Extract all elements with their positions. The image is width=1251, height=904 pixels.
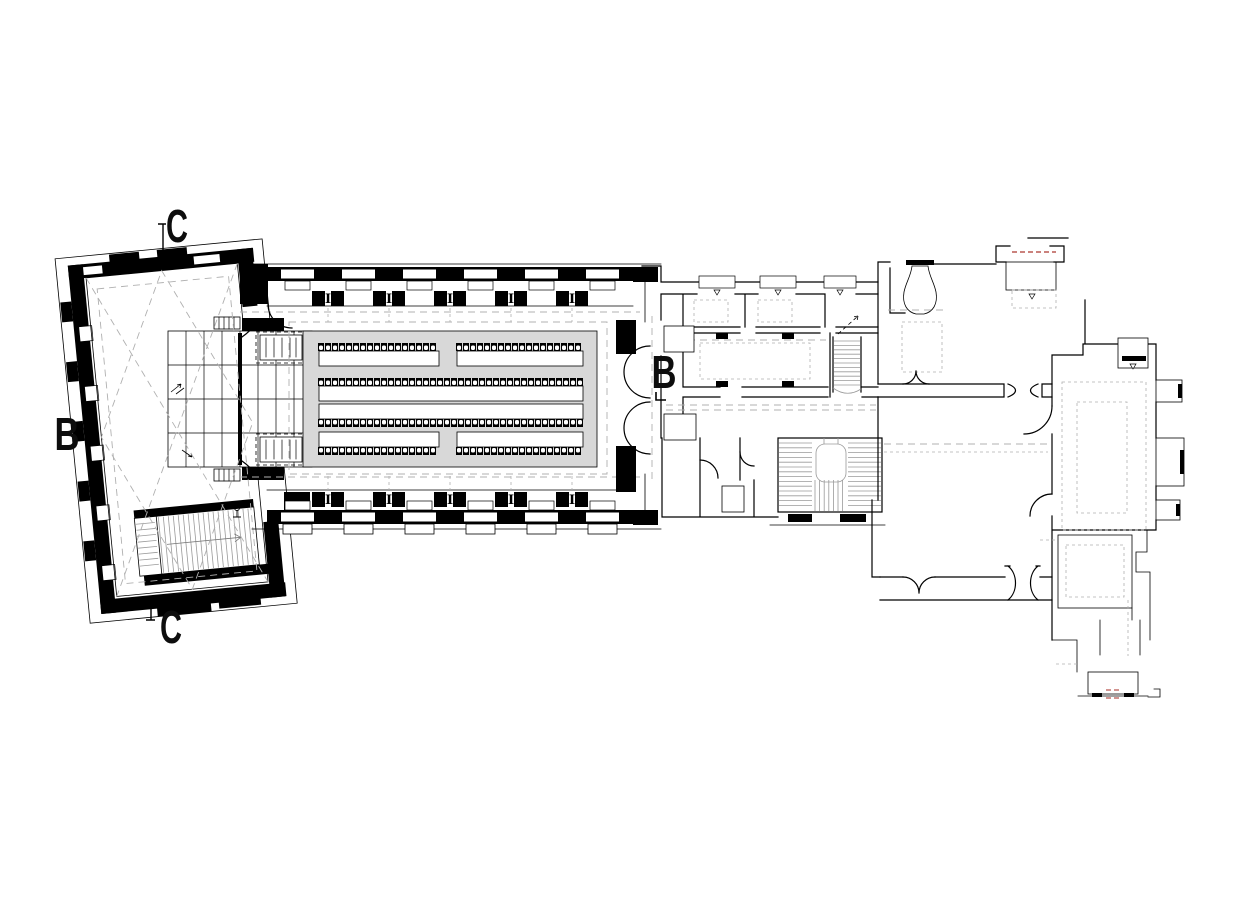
seat-pad <box>555 448 559 453</box>
north-window-bays <box>699 276 856 295</box>
seat-pad <box>478 346 482 351</box>
chapel-niche-inner <box>407 501 432 510</box>
northeast-portal <box>996 238 1068 308</box>
seat-pad <box>375 346 379 351</box>
bench <box>457 432 583 447</box>
chapel-niche <box>342 513 375 522</box>
seat-pad <box>403 420 407 425</box>
seat-pad <box>396 420 400 425</box>
seat-pad <box>550 381 554 386</box>
column-symbol: I <box>508 292 514 307</box>
chapel-niche <box>342 270 375 279</box>
pilaster-tab <box>434 492 447 507</box>
east-chapel-wing <box>1024 300 1184 698</box>
seat-pad <box>410 448 414 453</box>
bench <box>319 404 583 419</box>
seat-pad <box>522 381 526 386</box>
bench <box>319 386 583 401</box>
seat-pad <box>389 420 393 425</box>
double-door-swing <box>903 371 929 384</box>
u-stair-treads <box>779 443 881 511</box>
double-door-swing <box>903 577 935 593</box>
u-stair <box>778 438 882 512</box>
chapel-niche-inner <box>346 501 371 510</box>
south-window-sill <box>840 514 866 522</box>
seat-pad <box>326 381 330 386</box>
seat-pad <box>354 346 358 351</box>
east-entrance-door-swings <box>624 346 650 454</box>
seat-pad <box>431 381 435 386</box>
seat-pad <box>424 420 428 425</box>
seat-pad <box>333 381 337 386</box>
column-symbol: I <box>508 493 514 508</box>
seat-pad <box>382 420 386 425</box>
seat-pad <box>459 381 463 386</box>
east-door-pier-bottom <box>616 446 636 492</box>
south-window-sill <box>788 514 812 522</box>
pilaster-tab <box>331 291 344 306</box>
seat-pad <box>347 381 351 386</box>
seat-pad <box>473 420 477 425</box>
seat-pad <box>487 420 491 425</box>
seat-pad <box>375 448 379 453</box>
column-symbol: I <box>325 493 331 508</box>
seat-pad <box>555 346 559 351</box>
column-symbol: I <box>386 292 392 307</box>
seat-pad <box>473 381 477 386</box>
seat-pad <box>340 346 344 351</box>
seat-pad <box>480 381 484 386</box>
seat-pad <box>513 346 517 351</box>
seat-pad <box>333 346 337 351</box>
seat-pad <box>410 420 414 425</box>
seat-pad <box>403 346 407 351</box>
chapel-niche-inner <box>590 281 615 290</box>
chapel-niche-inner <box>529 281 554 290</box>
column-symbol: I <box>447 493 453 508</box>
seat-pad <box>492 346 496 351</box>
seat-pad <box>438 420 442 425</box>
seat-pad <box>557 420 561 425</box>
west-stair <box>134 498 271 586</box>
seat-pad <box>319 420 323 425</box>
chapel-niche-inner <box>407 281 432 290</box>
south-room <box>1040 535 1132 608</box>
ceiling-guide-inner <box>1077 402 1127 513</box>
seat-pad <box>340 448 344 453</box>
seat-pad <box>548 346 552 351</box>
seat-pad <box>571 381 575 386</box>
seat-pad <box>403 381 407 386</box>
pilaster-tab <box>514 492 527 507</box>
seat-pad <box>562 448 566 453</box>
seat-pad <box>459 420 463 425</box>
chapel-niche <box>281 270 314 279</box>
seat-pad <box>417 420 421 425</box>
pilaster-tab <box>373 291 386 306</box>
outer-chapel <box>344 524 373 534</box>
seat-pad <box>424 346 428 351</box>
buttress <box>83 540 96 561</box>
seat-pad <box>389 448 393 453</box>
seat-pad <box>424 448 428 453</box>
seat-pad <box>326 448 330 453</box>
seat-pad <box>485 448 489 453</box>
floor-plan-page: IIIIIIIIII <box>0 0 1251 904</box>
pilaster-tab <box>392 492 405 507</box>
seat-pad <box>499 448 503 453</box>
chapel-niche <box>525 513 558 522</box>
pilaster-tab <box>556 291 569 306</box>
buttress <box>60 301 73 322</box>
pilaster-tab <box>453 291 466 306</box>
pilaster-tab <box>373 492 386 507</box>
seat-pad <box>522 420 526 425</box>
seat-pad <box>548 448 552 453</box>
seat-pad <box>347 448 351 453</box>
outer-chapel <box>466 524 495 534</box>
seat-pad <box>506 346 510 351</box>
seat-pad <box>319 448 323 453</box>
section-marker-b-left: B <box>55 408 80 460</box>
column-symbol: I <box>569 493 575 508</box>
chapel-niche-inner <box>285 501 310 510</box>
seat-pad <box>471 448 475 453</box>
chapel-niche-inner <box>590 501 615 510</box>
seat-pad <box>478 448 482 453</box>
seat-pad <box>499 346 503 351</box>
chapel-niche <box>525 270 558 279</box>
seat-pad <box>354 420 358 425</box>
seat-pad <box>480 420 484 425</box>
seat-pad <box>485 346 489 351</box>
chapel-niche-inner <box>468 281 493 290</box>
seat-pad <box>536 381 540 386</box>
east-wing <box>642 238 1184 698</box>
seat-pad <box>382 346 386 351</box>
chapel-niche <box>403 270 436 279</box>
chapel-niche-inner <box>346 281 371 290</box>
seat-pad <box>492 448 496 453</box>
seat-pad <box>375 381 379 386</box>
buttress <box>66 361 79 382</box>
pilaster-tab <box>453 492 466 507</box>
seat-pad <box>347 346 351 351</box>
seat-pad <box>541 346 545 351</box>
seat-pad <box>333 420 337 425</box>
seat-pad <box>368 420 372 425</box>
chapel-niche <box>403 513 436 522</box>
pilaster-tab <box>331 492 344 507</box>
proscenium-wall-top <box>242 318 284 331</box>
seat-pad <box>564 381 568 386</box>
seat-pad <box>452 420 456 425</box>
seat-pad <box>354 381 358 386</box>
seat-pad <box>508 381 512 386</box>
section-marker-c-top: C <box>166 200 188 252</box>
seat-pad <box>368 448 372 453</box>
buttress <box>78 481 91 502</box>
seat-pad <box>354 448 358 453</box>
chapel-niche <box>464 513 497 522</box>
chapel-niche <box>464 270 497 279</box>
seat-pad <box>382 381 386 386</box>
seat-pad <box>431 420 435 425</box>
seat-pad <box>576 346 580 351</box>
seat-pad <box>529 381 533 386</box>
pilaster-tab <box>312 492 325 507</box>
seat-pad <box>494 420 498 425</box>
southeast-stepped-walls <box>1052 530 1150 672</box>
bell-pier <box>888 260 944 372</box>
pilaster-tab <box>575 291 588 306</box>
seat-pad <box>438 381 442 386</box>
south-porch <box>1078 672 1148 698</box>
west-door-swings <box>1024 406 1052 516</box>
seat-pad <box>543 381 547 386</box>
seat-pad <box>389 381 393 386</box>
seat-pad <box>375 420 379 425</box>
pilaster-tab <box>514 291 527 306</box>
hall-se-wall <box>633 510 658 525</box>
column-symbol: I <box>447 292 453 307</box>
seat-pad <box>396 381 400 386</box>
pilaster-tab <box>392 291 405 306</box>
seat-pad <box>520 448 524 453</box>
seat-pad <box>396 346 400 351</box>
seat-pad <box>417 346 421 351</box>
pilaster-tab <box>434 291 447 306</box>
chapel-niche <box>586 513 619 522</box>
seat-pad <box>417 448 421 453</box>
seat-pad <box>578 420 582 425</box>
seat-pad <box>457 346 461 351</box>
pilaster-tab <box>495 291 508 306</box>
seat-pad <box>564 420 568 425</box>
east-wall-bays <box>1156 380 1184 520</box>
chapel-niche-inner <box>468 501 493 510</box>
pilaster-tab <box>556 492 569 507</box>
seat-pad <box>520 346 524 351</box>
outer-chapel <box>527 524 556 534</box>
seat-pad <box>424 381 428 386</box>
seat-pad <box>361 448 365 453</box>
outer-chapel <box>588 524 617 534</box>
seat-pad <box>534 448 538 453</box>
seat-pad <box>431 448 435 453</box>
proscenium-wall-bottom <box>242 467 284 480</box>
seat-pad <box>513 448 517 453</box>
seat-pad <box>506 448 510 453</box>
seat-pad <box>557 381 561 386</box>
south-room-door-swings <box>700 452 754 478</box>
seat-pad <box>569 448 573 453</box>
chapel-niche <box>281 513 314 522</box>
south-room-closet <box>722 486 744 512</box>
hall-ne-wall <box>633 267 658 282</box>
seat-pad <box>527 346 531 351</box>
seat-pad <box>431 346 435 351</box>
north-portal-bay <box>1118 338 1148 369</box>
skylight-guides <box>666 300 876 410</box>
seat-pad <box>527 448 531 453</box>
seat-pad <box>466 420 470 425</box>
seat-pad <box>541 448 545 453</box>
seat-pad <box>464 346 468 351</box>
seat-pad <box>508 420 512 425</box>
seat-pad <box>578 381 582 386</box>
seat-pad <box>417 381 421 386</box>
seat-pad <box>382 448 386 453</box>
pilaster-tab <box>575 492 588 507</box>
butterfly-door <box>1008 384 1038 397</box>
seat-pad <box>361 346 365 351</box>
seat-pad <box>347 420 351 425</box>
bench <box>457 351 583 366</box>
outer-chapel <box>283 524 312 534</box>
column-symbol: I <box>325 292 331 307</box>
seat-pad <box>466 381 470 386</box>
seat-pad <box>445 420 449 425</box>
seat-pad <box>501 420 505 425</box>
seat-pad <box>464 448 468 453</box>
seat-pad <box>501 381 505 386</box>
seat-pad <box>340 381 344 386</box>
seat-pad <box>515 381 519 386</box>
seat-pad <box>543 420 547 425</box>
section-marker-c-bottom: C <box>160 601 182 653</box>
seat-pad <box>445 381 449 386</box>
north-cloister-corridor <box>878 371 1052 397</box>
east-door-pier-top <box>616 320 636 354</box>
seat-pad <box>515 420 519 425</box>
seat-pad <box>319 346 323 351</box>
corner-bracket <box>1148 689 1160 697</box>
seat-pad <box>487 381 491 386</box>
seat-pad <box>410 346 414 351</box>
north-rooms-walls <box>642 266 878 517</box>
bench <box>319 432 439 447</box>
seat-pad <box>529 420 533 425</box>
floor-plan-drawing: IIIIIIIIII <box>0 0 1251 904</box>
seat-pad <box>569 346 573 351</box>
hall-nw-junction <box>240 264 268 304</box>
chapel-niche-inner <box>285 281 310 290</box>
seat-pad <box>562 346 566 351</box>
column-symbol: I <box>569 292 575 307</box>
seat-pad <box>550 420 554 425</box>
seat-pad <box>333 448 337 453</box>
seat-pad <box>457 448 461 453</box>
ne-stair-treads <box>834 341 860 385</box>
seat-pad <box>361 381 365 386</box>
se-guides <box>1056 600 1128 664</box>
seat-pad <box>534 346 538 351</box>
seat-pad <box>471 346 475 351</box>
seat-pad <box>368 346 372 351</box>
butterfly-door <box>1005 566 1040 600</box>
ceiling-guide-outer <box>1062 382 1146 530</box>
pilaster-tab <box>495 492 508 507</box>
seat-pad <box>361 420 365 425</box>
seat-pad <box>326 346 330 351</box>
chapel-niche <box>586 270 619 279</box>
seat-pad <box>319 381 323 386</box>
seat-pad <box>494 381 498 386</box>
seat-pad <box>326 420 330 425</box>
seat-pad <box>389 346 393 351</box>
stage-ladder-top <box>214 317 240 329</box>
seat-pad <box>396 448 400 453</box>
seat-pad <box>403 448 407 453</box>
seat-pad <box>368 381 372 386</box>
courtyard-west-walls <box>872 262 996 577</box>
column-symbol: I <box>386 493 392 508</box>
seat-pad <box>536 420 540 425</box>
seat-pad <box>576 448 580 453</box>
seat-pad <box>571 420 575 425</box>
bench <box>319 351 439 366</box>
stage-ladder-bottom <box>214 469 240 481</box>
seat-pad <box>410 381 414 386</box>
seat-pad <box>452 381 456 386</box>
outer-chapel <box>405 524 434 534</box>
south-cloister-corridor <box>880 566 1052 600</box>
pilaster-tab <box>312 291 325 306</box>
seat-pad <box>340 420 344 425</box>
chapel-niche-inner <box>529 501 554 510</box>
section-marker-b-mid: B <box>652 346 677 398</box>
